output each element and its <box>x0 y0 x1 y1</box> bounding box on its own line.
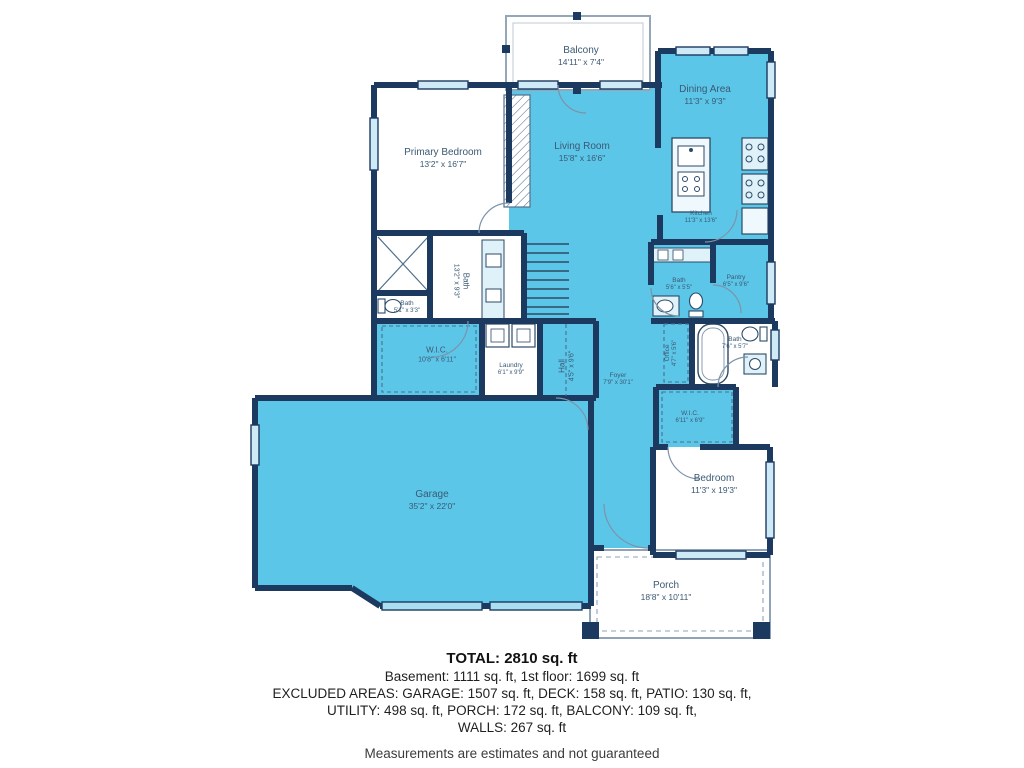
summary-line: Basement: 1111 sq. ft, 1st floor: 1699 s… <box>0 668 1024 685</box>
summary-line: UTILITY: 498 sq. ft, PORCH: 172 sq. ft, … <box>0 702 1024 719</box>
bath-main-floor <box>430 235 524 321</box>
fridge-icon <box>742 208 768 234</box>
garage-floor <box>255 398 591 606</box>
porch-structure <box>582 550 770 639</box>
window <box>767 62 775 98</box>
bedroom-floor <box>653 447 770 555</box>
bathtub-icon <box>698 324 728 384</box>
garage-door <box>382 602 482 610</box>
wic-left-floor <box>374 318 482 398</box>
office-floor <box>660 318 692 387</box>
window <box>766 462 774 538</box>
kitchen-appliances <box>742 138 768 234</box>
floorplan-page: Balcony 14'11" x 7'4" Primary Bedroom 13… <box>0 0 1024 768</box>
hall-floor <box>540 318 596 398</box>
toilet-icon <box>742 327 758 341</box>
summary-block: TOTAL: 2810 sq. ft Basement: 1111 sq. ft… <box>0 650 1024 762</box>
stove-icon <box>678 172 704 196</box>
range-icon <box>742 138 768 170</box>
window <box>418 81 468 89</box>
window <box>370 118 378 170</box>
washer-icon <box>486 324 509 347</box>
dryer-icon <box>512 324 535 347</box>
window <box>714 47 748 55</box>
summary-line: WALLS: 267 sq. ft <box>0 719 1024 736</box>
window <box>676 47 710 55</box>
balcony-post <box>573 12 581 20</box>
window <box>600 81 642 89</box>
garage-door <box>490 602 582 610</box>
window <box>518 81 558 89</box>
window <box>676 551 746 559</box>
summary-disclaimer: Measurements are estimates and not guara… <box>0 745 1024 762</box>
summary-total: TOTAL: 2810 sq. ft <box>0 650 1024 668</box>
balcony-post <box>502 45 510 53</box>
kitchen-island <box>672 138 710 212</box>
summary-line: EXCLUDED AREAS: GARAGE: 1507 sq. ft, DEC… <box>0 685 1024 702</box>
porch-post <box>753 622 770 639</box>
window <box>251 425 259 465</box>
window <box>767 262 775 304</box>
toilet-icon <box>690 293 703 309</box>
porch-post <box>582 622 599 639</box>
cooktop-icon <box>742 174 768 204</box>
window <box>771 330 779 360</box>
bath-main-vanity <box>482 240 504 320</box>
pantry-floor <box>713 242 771 321</box>
sink-icon <box>486 254 501 267</box>
toilet-icon <box>378 299 401 313</box>
wic-right-floor <box>656 387 736 447</box>
sink-icon <box>486 289 501 302</box>
